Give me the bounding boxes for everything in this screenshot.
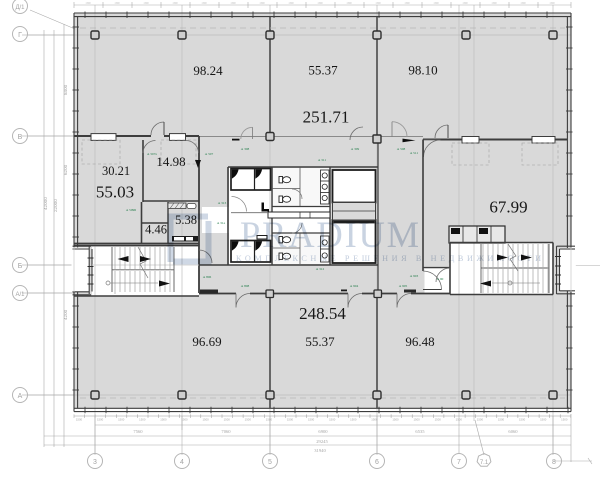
svg-text:14.98: 14.98 <box>156 154 185 169</box>
svg-text:А 31а: А 31а <box>217 221 226 225</box>
svg-text:А 313: А 313 <box>218 201 227 205</box>
svg-text:1500: 1500 <box>224 418 231 422</box>
svg-text:6200: 6200 <box>63 164 68 175</box>
svg-text:1500: 1500 <box>392 418 399 422</box>
svg-text:1500: 1500 <box>520 2 526 5</box>
svg-text:55.03: 55.03 <box>96 183 134 202</box>
svg-text:1500: 1500 <box>435 418 442 422</box>
svg-text:1500: 1500 <box>181 418 188 422</box>
svg-text:4.46: 4.46 <box>145 223 167 237</box>
svg-text:1500: 1500 <box>143 2 149 5</box>
svg-text:1500: 1500 <box>76 418 83 422</box>
svg-text:1500: 1500 <box>433 2 439 5</box>
svg-text:1500: 1500 <box>561 418 568 422</box>
svg-text:1500: 1500 <box>477 418 484 422</box>
svg-text:КОМПЛЕКСНЫЕ РЕШЕНИЯ В НЕДВИЖИМ: КОМПЛЕКСНЫЕ РЕШЕНИЯ В НЕДВИЖИМОСТИ <box>236 254 545 263</box>
svg-text:3: 3 <box>93 459 97 466</box>
svg-text:4200: 4200 <box>63 309 68 320</box>
svg-text:Д/1: Д/1 <box>15 5 25 11</box>
svg-text:1500: 1500 <box>118 418 125 422</box>
svg-text:А/1: А/1 <box>15 292 25 298</box>
svg-text:А 903: А 903 <box>410 274 419 278</box>
svg-text:42000: 42000 <box>43 197 48 210</box>
svg-text:А 507: А 507 <box>205 152 214 156</box>
svg-text:1500: 1500 <box>201 2 207 5</box>
svg-text:6060: 6060 <box>508 429 518 434</box>
svg-text:7.1: 7.1 <box>480 460 489 466</box>
svg-text:1500: 1500 <box>259 2 265 5</box>
svg-text:1500: 1500 <box>288 2 294 5</box>
svg-text:А 90: А 90 <box>437 277 444 281</box>
svg-text:1500: 1500 <box>462 2 468 5</box>
svg-text:1500: 1500 <box>160 418 167 422</box>
svg-text:7: 7 <box>457 459 461 466</box>
svg-text:67.99: 67.99 <box>489 198 527 217</box>
svg-text:55.37: 55.37 <box>305 334 335 349</box>
svg-text:А 507а: А 507а <box>147 152 157 156</box>
svg-text:1500: 1500 <box>350 418 357 422</box>
svg-text:22000: 22000 <box>53 199 58 212</box>
svg-text:1500: 1500 <box>549 2 555 5</box>
svg-text:96.69: 96.69 <box>192 334 221 349</box>
svg-text:1500: 1500 <box>202 418 209 422</box>
svg-text:А 311: А 311 <box>318 158 327 162</box>
svg-text:1500: 1500 <box>172 2 178 5</box>
svg-text:251.71: 251.71 <box>303 108 350 127</box>
svg-text:98.24: 98.24 <box>193 63 223 78</box>
svg-text:6900: 6900 <box>318 429 328 434</box>
svg-text:1500: 1500 <box>346 2 352 5</box>
svg-text:31940: 31940 <box>314 448 326 453</box>
svg-text:7560: 7560 <box>133 429 143 434</box>
svg-text:8: 8 <box>552 459 556 466</box>
svg-text:1500: 1500 <box>317 2 323 5</box>
svg-text:А 309: А 309 <box>351 147 360 151</box>
svg-text:А 308: А 308 <box>241 147 250 151</box>
svg-text:8400: 8400 <box>63 84 68 95</box>
svg-text:1500: 1500 <box>114 2 120 5</box>
svg-text:1500: 1500 <box>519 418 526 422</box>
svg-text:PRADIUM: PRADIUM <box>240 214 421 255</box>
svg-text:Г: Г <box>18 32 22 39</box>
svg-text:30.21: 30.21 <box>102 164 130 178</box>
svg-text:1500: 1500 <box>308 418 315 422</box>
svg-text:1500: 1500 <box>266 418 273 422</box>
svg-text:1500: 1500 <box>245 418 252 422</box>
svg-text:1500: 1500 <box>287 418 294 422</box>
svg-text:А 806: А 806 <box>203 275 212 279</box>
svg-text:А 509Б: А 509Б <box>126 208 136 212</box>
svg-text:248.54: 248.54 <box>299 304 346 323</box>
svg-text:1500: 1500 <box>139 418 146 422</box>
svg-text:1500: 1500 <box>230 2 236 5</box>
svg-text:5: 5 <box>268 459 272 466</box>
svg-text:1500: 1500 <box>329 418 336 422</box>
svg-text:98.10: 98.10 <box>408 63 437 78</box>
svg-text:55.37: 55.37 <box>308 63 338 78</box>
svg-text:А 904: А 904 <box>350 284 359 288</box>
svg-text:1500: 1500 <box>540 418 547 422</box>
svg-text:1500: 1500 <box>404 2 410 5</box>
svg-text:1500: 1500 <box>498 418 505 422</box>
svg-text:7060: 7060 <box>221 429 231 434</box>
svg-text:29245: 29245 <box>316 439 328 444</box>
svg-text:6: 6 <box>375 459 379 466</box>
svg-text:1500: 1500 <box>375 2 381 5</box>
svg-text:1500: 1500 <box>456 418 463 422</box>
svg-text:А 808: А 808 <box>241 284 250 288</box>
svg-text:А 511: А 511 <box>410 151 419 155</box>
svg-text:А: А <box>18 393 23 400</box>
svg-text:1500: 1500 <box>97 418 104 422</box>
svg-text:А 508: А 508 <box>397 147 406 151</box>
svg-text:В: В <box>18 134 23 141</box>
svg-text:А 905: А 905 <box>399 284 408 288</box>
svg-text:1500: 1500 <box>85 2 91 5</box>
svg-text:4: 4 <box>180 459 184 466</box>
svg-text:А 312: А 312 <box>316 267 325 271</box>
svg-text:1500: 1500 <box>491 2 497 5</box>
svg-text:6535: 6535 <box>415 429 425 434</box>
svg-text:1500: 1500 <box>413 418 420 422</box>
svg-text:96.48: 96.48 <box>405 334 434 349</box>
svg-text:Б: Б <box>18 263 23 270</box>
